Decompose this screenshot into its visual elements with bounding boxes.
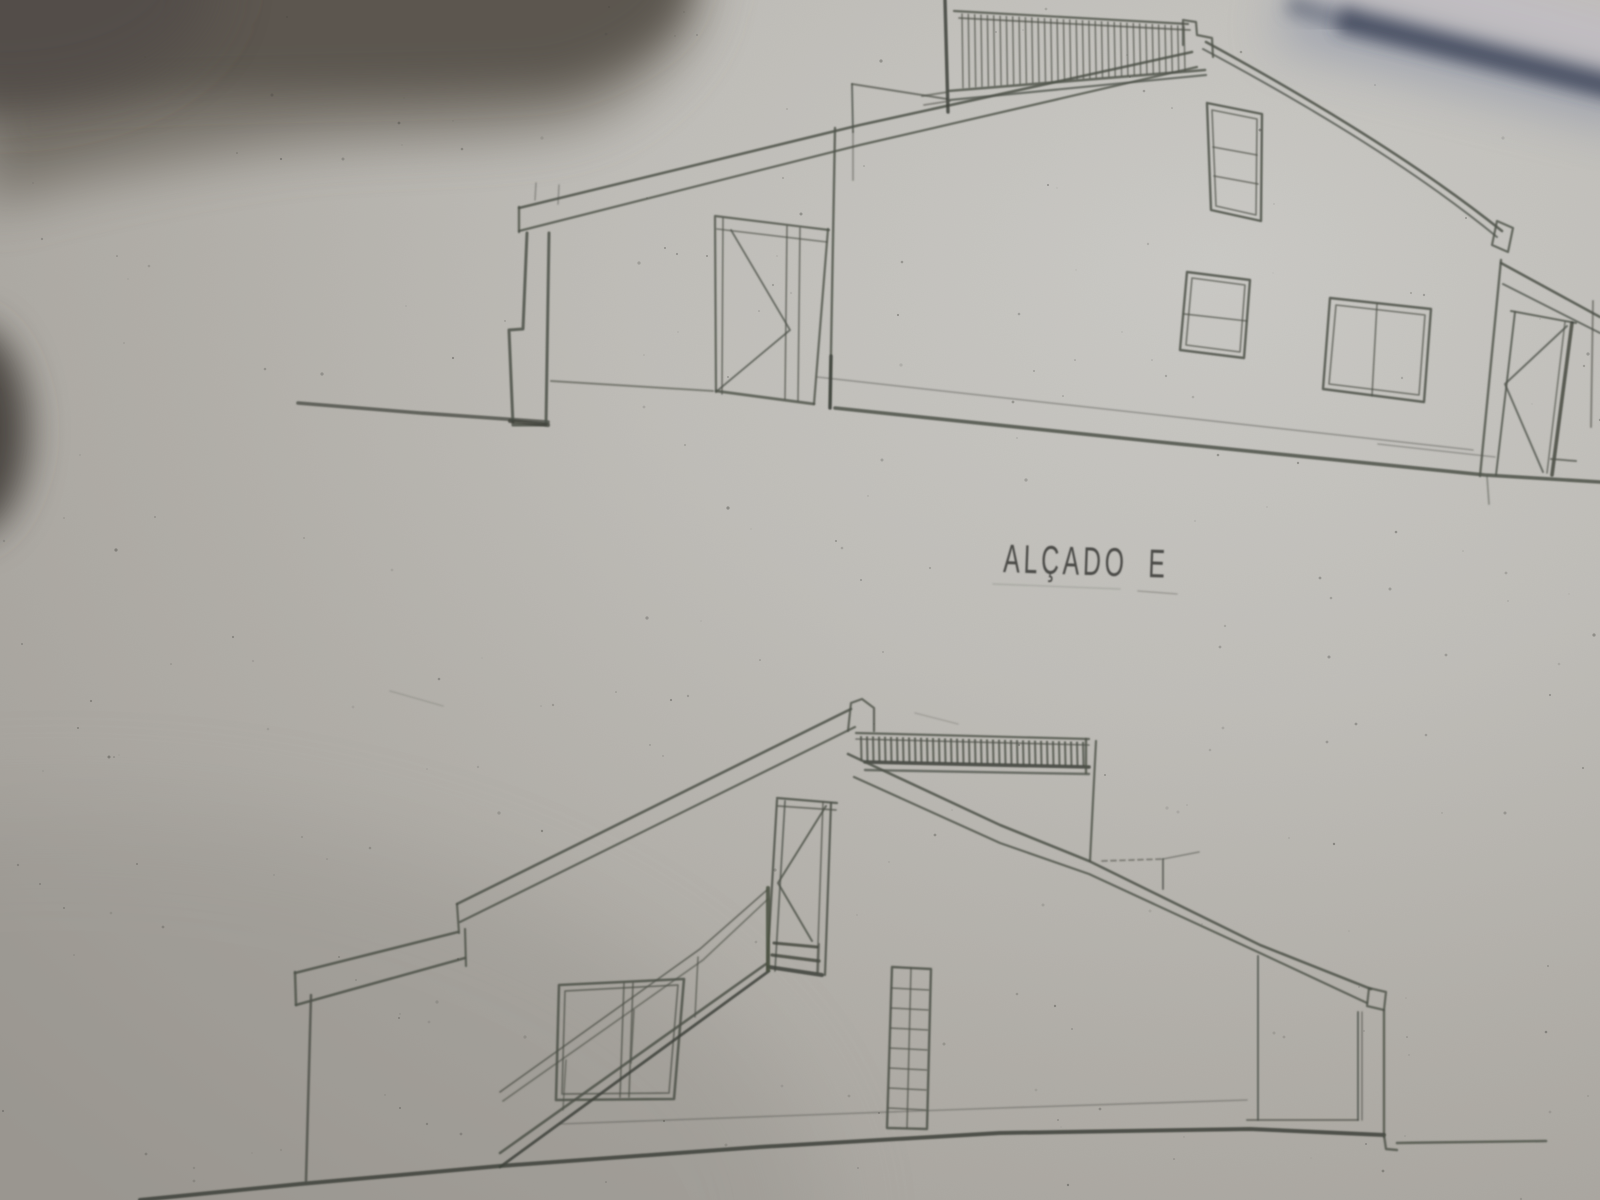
- svg-text:E: E: [1148, 542, 1166, 587]
- svg-text:ALÇADO: ALÇADO: [1003, 537, 1129, 586]
